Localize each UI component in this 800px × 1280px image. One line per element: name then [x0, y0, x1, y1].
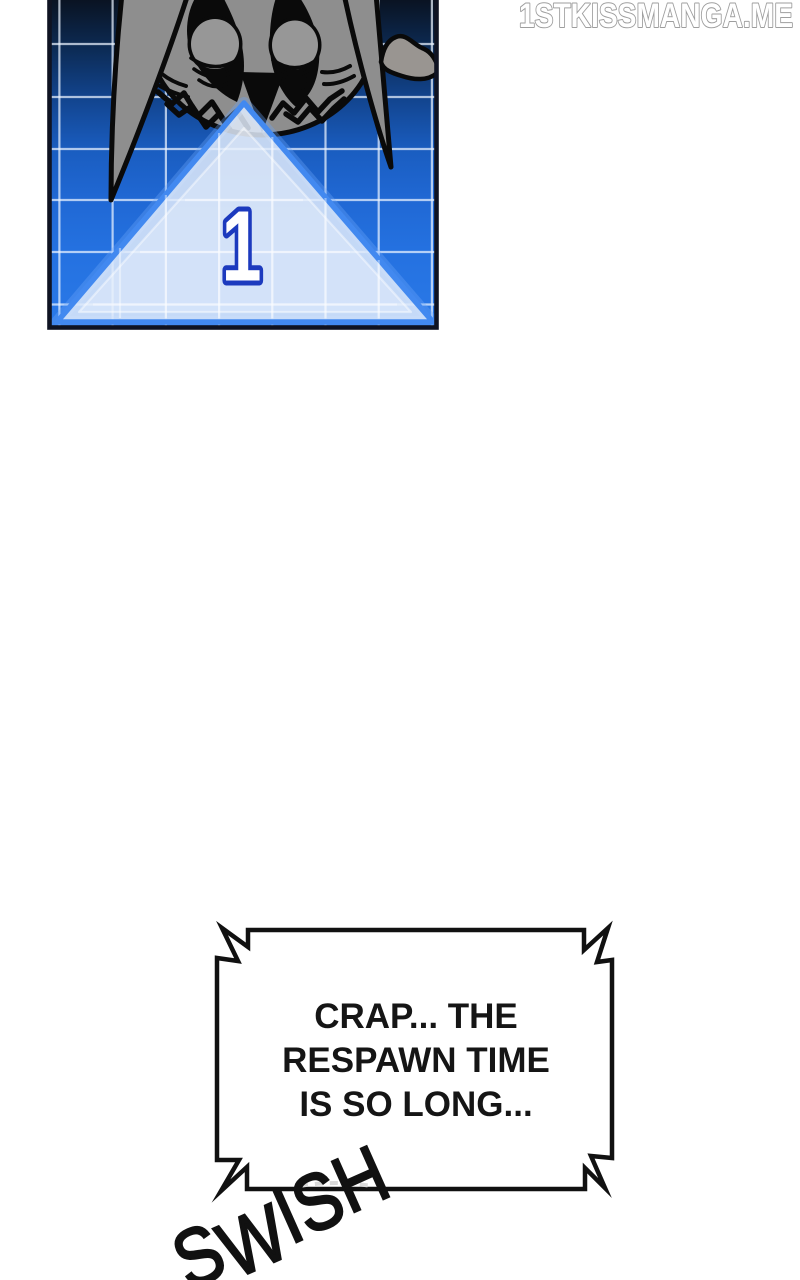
- svg-text:IS SO LONG...: IS SO LONG...: [299, 1085, 532, 1124]
- svg-text:1STKISSMANGA.ME: 1STKISSMANGA.ME: [519, 0, 793, 35]
- svg-text:1: 1: [221, 191, 261, 302]
- svg-text:RESPAWN TIME: RESPAWN TIME: [282, 1041, 550, 1080]
- svg-text:CRAP... THE: CRAP... THE: [314, 997, 518, 1036]
